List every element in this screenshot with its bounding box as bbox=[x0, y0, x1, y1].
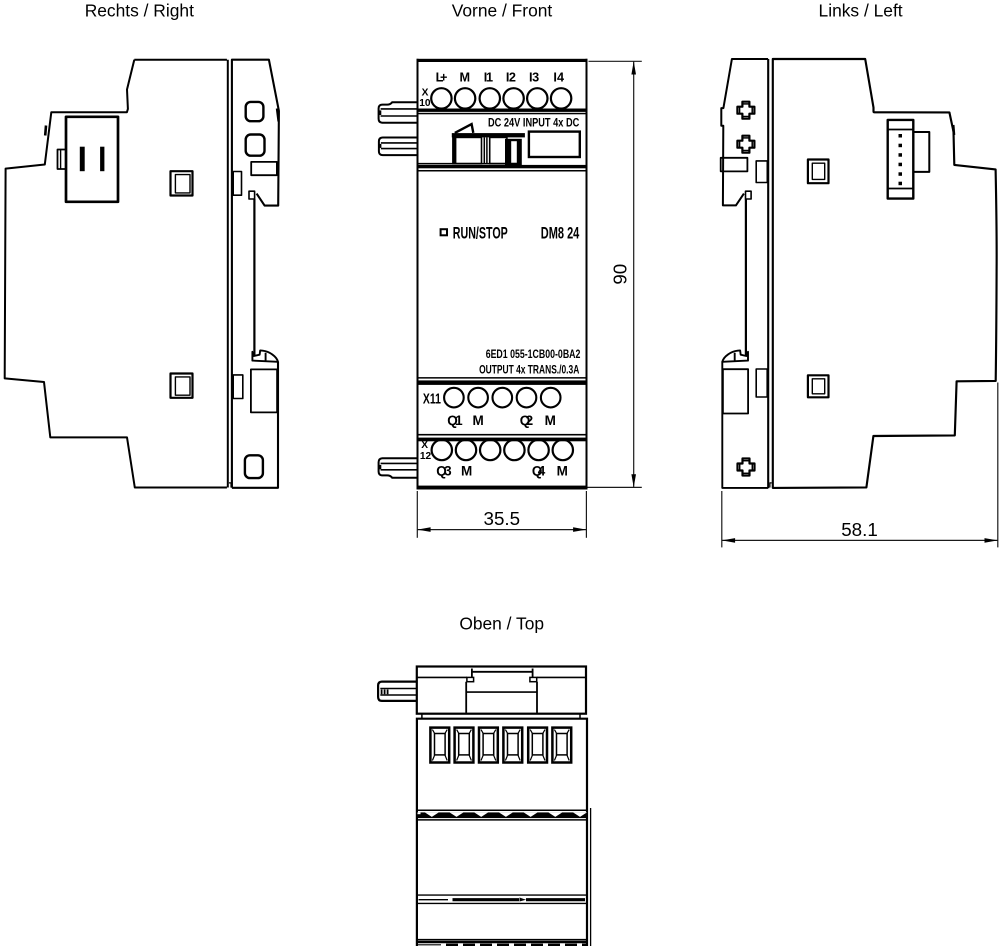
svg-text:35.5: 35.5 bbox=[484, 508, 521, 529]
svg-text:M: M bbox=[545, 413, 556, 428]
svg-text:Oben / Top: Oben / Top bbox=[459, 614, 544, 634]
svg-text:X: X bbox=[422, 87, 429, 98]
svg-text:Vorne / Front: Vorne / Front bbox=[452, 0, 553, 20]
svg-text:Links / Left: Links / Left bbox=[819, 0, 903, 20]
svg-text:M: M bbox=[460, 70, 471, 84]
svg-text:Q1: Q1 bbox=[447, 413, 463, 428]
svg-text:OUTPUT 4x TRANS./0.3A: OUTPUT 4x TRANS./0.3A bbox=[479, 363, 579, 377]
svg-text:M: M bbox=[461, 463, 472, 478]
svg-text:I3: I3 bbox=[529, 70, 539, 84]
svg-text:M: M bbox=[557, 463, 568, 478]
svg-text:X: X bbox=[421, 440, 428, 451]
svg-text:Q3: Q3 bbox=[436, 463, 452, 478]
svg-text:Q4: Q4 bbox=[532, 463, 546, 478]
svg-text:Rechts / Right: Rechts / Right bbox=[85, 0, 194, 20]
svg-text:DC 24V INPUT 4x DC: DC 24V INPUT 4x DC bbox=[488, 118, 579, 130]
svg-text:6ED1 055-1CB00-0BA2: 6ED1 055-1CB00-0BA2 bbox=[486, 347, 581, 361]
svg-text:10: 10 bbox=[419, 98, 431, 109]
svg-text:M: M bbox=[472, 413, 483, 428]
svg-text:RUN/STOP: RUN/STOP bbox=[453, 224, 508, 242]
svg-text:L+: L+ bbox=[436, 70, 448, 84]
svg-text:Q2: Q2 bbox=[520, 413, 533, 428]
svg-text:I4: I4 bbox=[553, 70, 564, 84]
svg-text:90: 90 bbox=[609, 264, 630, 285]
svg-text:I2: I2 bbox=[506, 70, 516, 84]
svg-text:58.1: 58.1 bbox=[841, 519, 878, 540]
svg-text:DM8 24: DM8 24 bbox=[541, 224, 580, 242]
svg-text:X11: X11 bbox=[423, 391, 441, 408]
svg-text:I1: I1 bbox=[484, 70, 493, 84]
svg-text:12: 12 bbox=[420, 451, 432, 462]
